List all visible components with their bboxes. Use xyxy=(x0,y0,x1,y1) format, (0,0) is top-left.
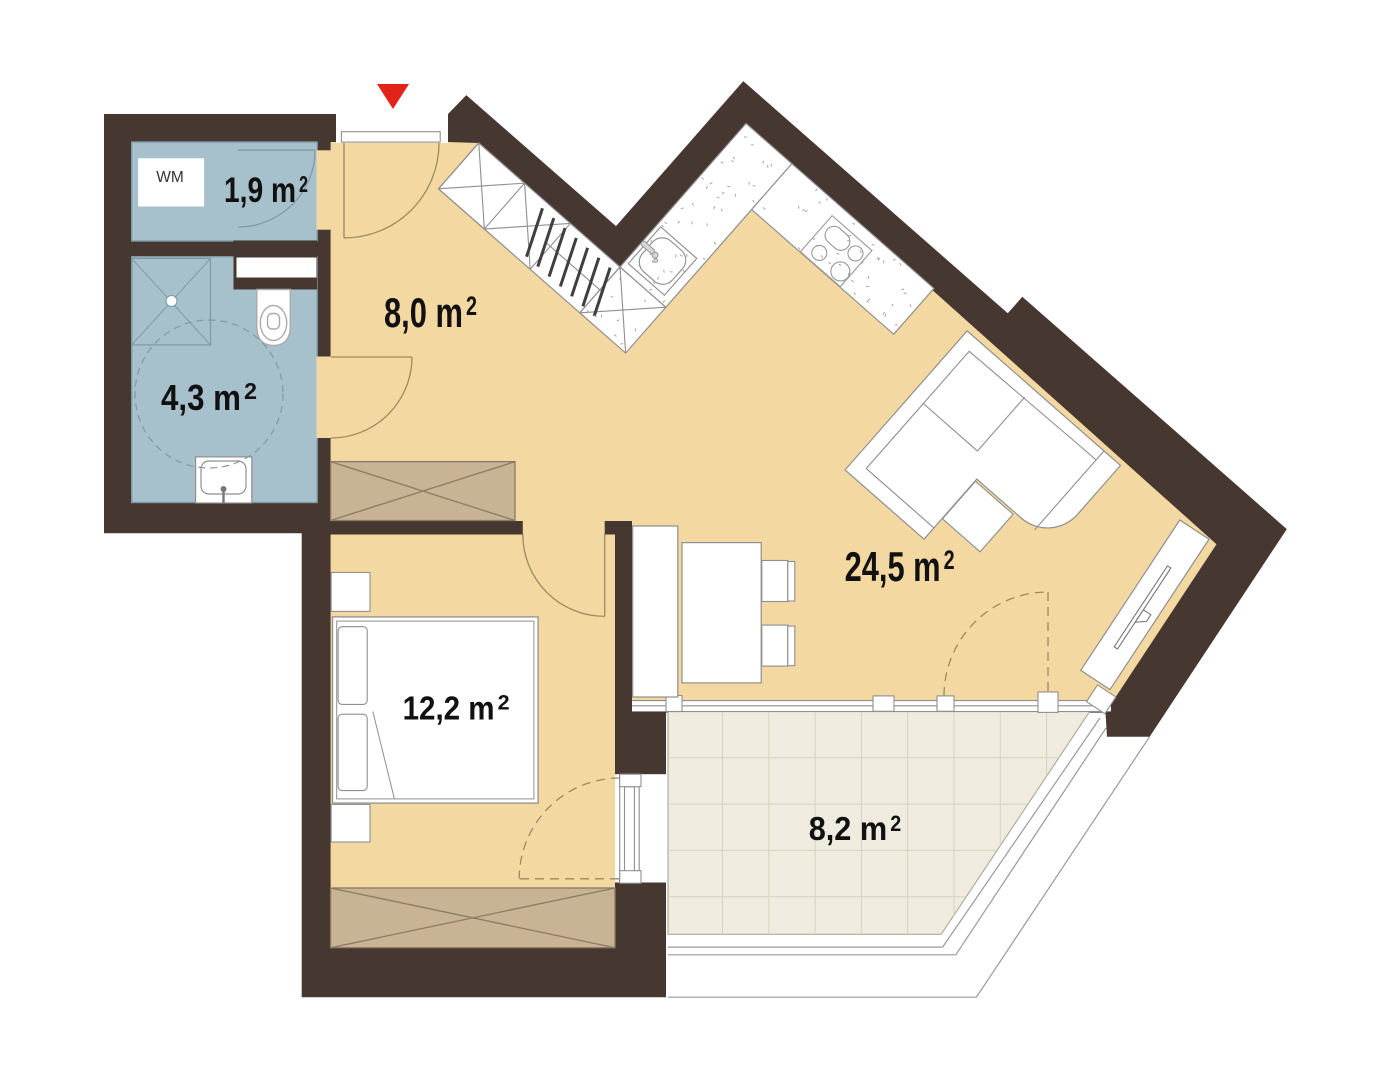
svg-text:2: 2 xyxy=(498,691,510,714)
svg-text:2: 2 xyxy=(890,811,901,836)
svg-text:2: 2 xyxy=(299,171,308,197)
svg-text:1,9 m: 1,9 m xyxy=(224,171,296,210)
svg-text:2: 2 xyxy=(244,378,257,404)
svg-text:2: 2 xyxy=(466,291,477,321)
svg-text:2: 2 xyxy=(944,545,955,575)
svg-text:24,5 m: 24,5 m xyxy=(845,543,941,590)
svg-text:8,0 m: 8,0 m xyxy=(384,289,463,336)
svg-text:4,3 m: 4,3 m xyxy=(161,377,241,418)
svg-text:WM: WM xyxy=(156,169,184,186)
svg-text:8,2 m: 8,2 m xyxy=(809,811,888,848)
svg-text:12,2 m: 12,2 m xyxy=(403,689,495,726)
